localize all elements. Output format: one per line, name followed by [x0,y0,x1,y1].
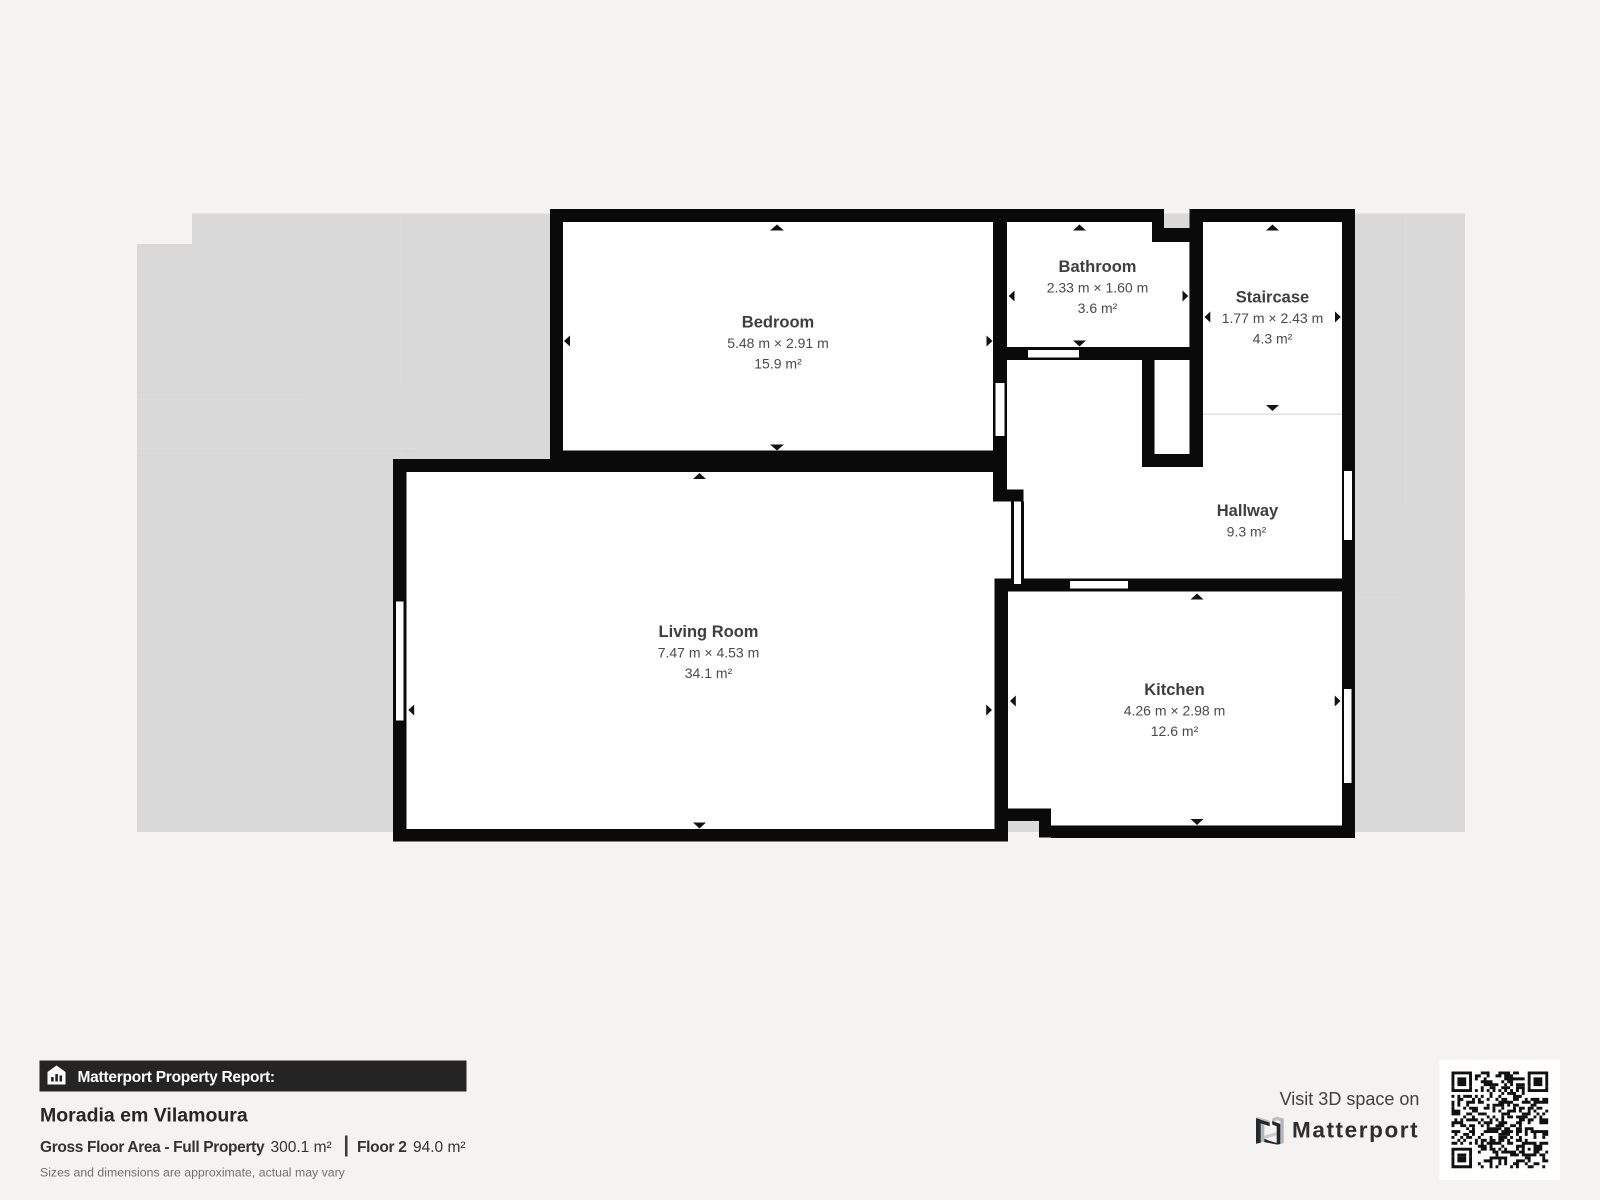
svg-text:3.6 m²: 3.6 m² [1078,300,1118,316]
svg-text:Bedroom: Bedroom [742,314,814,332]
svg-text:Kitchen: Kitchen [1144,681,1205,699]
svg-text:12.6 m²: 12.6 m² [1151,723,1199,739]
svg-text:Gross Floor Area - Full Proper: Gross Floor Area - Full Property [40,1139,265,1156]
svg-text:34.1 m²: 34.1 m² [685,665,733,681]
svg-text:Matterport: Matterport [1292,1118,1419,1143]
svg-text:15.9 m²: 15.9 m² [754,356,802,372]
svg-text:Visit 3D space on: Visit 3D space on [1280,1089,1420,1109]
svg-text:Moradia em Vilamoura: Moradia em Vilamoura [40,1105,248,1127]
svg-text:Bathroom: Bathroom [1059,258,1137,276]
svg-text:Staircase: Staircase [1236,289,1309,307]
svg-text:7.47 m × 4.53 m: 7.47 m × 4.53 m [658,645,760,661]
svg-text:Hallway: Hallway [1217,502,1279,520]
svg-text:Matterport Property Report:: Matterport Property Report: [78,1069,275,1086]
svg-text:5.48 m × 2.91 m: 5.48 m × 2.91 m [727,335,829,351]
svg-text:4.26 m × 2.98 m: 4.26 m × 2.98 m [1124,703,1226,719]
svg-text:4.3 m²: 4.3 m² [1253,331,1293,347]
svg-text:1.77 m × 2.43 m: 1.77 m × 2.43 m [1222,310,1324,326]
svg-text:94.0 m²: 94.0 m² [413,1139,466,1156]
svg-text:Sizes and dimensions are appro: Sizes and dimensions are approximate, ac… [40,1166,346,1180]
svg-text:Living Room: Living Room [659,623,759,641]
svg-text:9.3 m²: 9.3 m² [1227,524,1267,540]
svg-text:2.33 m × 1.60 m: 2.33 m × 1.60 m [1047,280,1149,296]
svg-text:Floor 2: Floor 2 [357,1139,407,1156]
svg-text:300.1 m²: 300.1 m² [271,1139,332,1156]
